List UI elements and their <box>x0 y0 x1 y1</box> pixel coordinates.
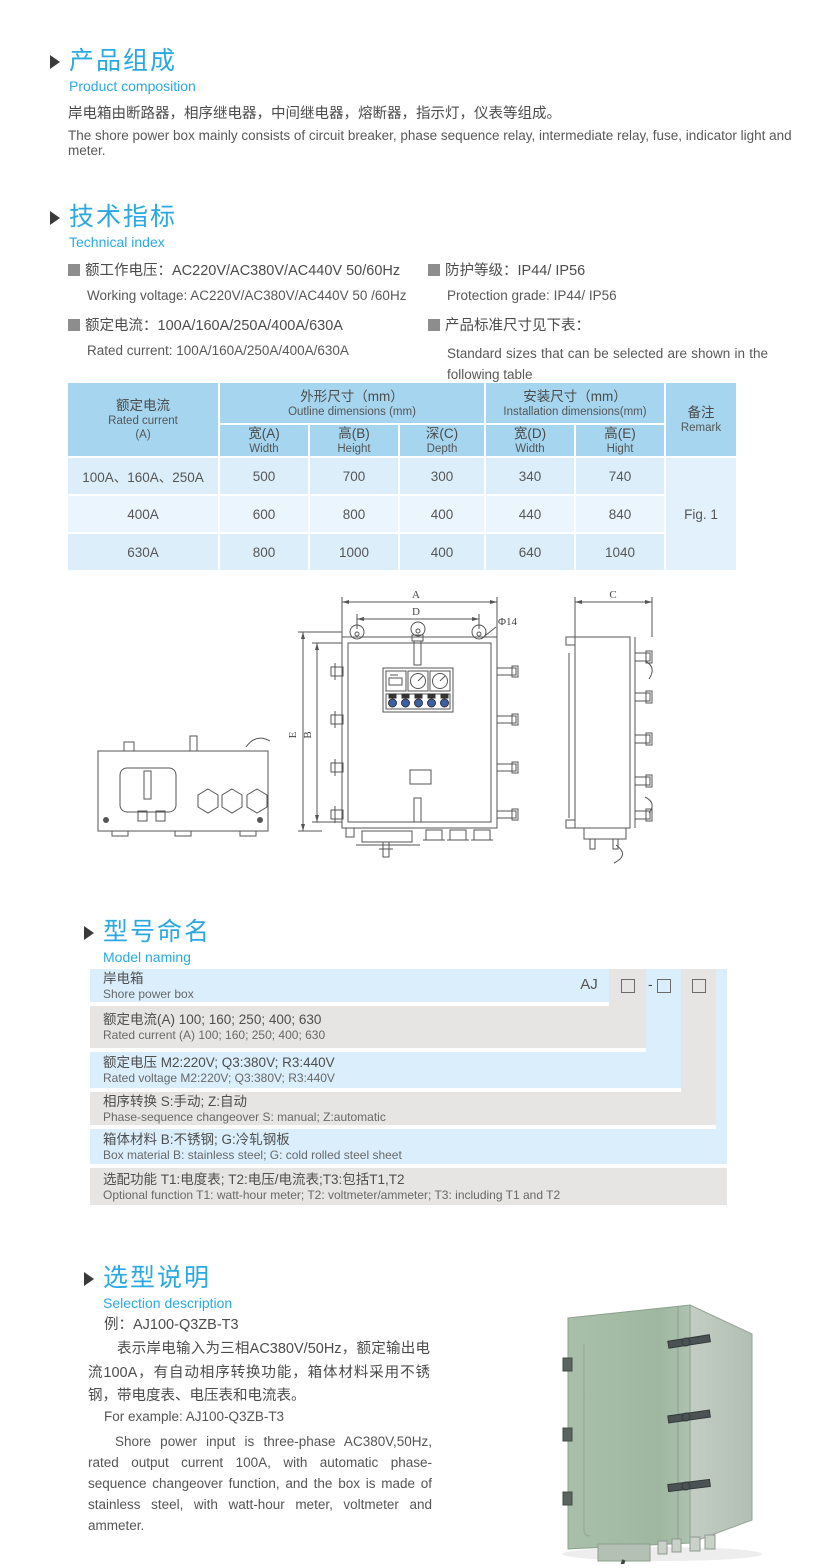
col-header-width-d: 宽(D)Width <box>486 425 574 456</box>
spec-item-en: Working voltage: AC220V/AC380V/AC440V 50… <box>87 288 406 303</box>
cell-height: 700 <box>310 458 398 494</box>
cell-current: 100A、160A、250A <box>68 458 218 494</box>
col-group-outline-dimensions: 外形尺寸（mm） Outline dimensions (mm) <box>220 383 484 423</box>
model-naming-row: 额定电压 M2:220V; Q3:380V; R3:440V Rated vol… <box>90 1052 646 1088</box>
heading-en: Technical index <box>69 233 177 251</box>
col-group-installation-dimensions: 安装尺寸（mm） Installation dimensions(mm) <box>486 383 664 423</box>
code-placeholder-box <box>692 979 706 993</box>
model-code-line: AJ - <box>90 969 727 1002</box>
cell-inst-width: 640 <box>486 534 574 570</box>
heading-en: Product composition <box>69 77 196 95</box>
product-composition-text-en: The shore power box mainly consists of c… <box>68 128 830 158</box>
drawing-side-view <box>566 597 652 863</box>
technical-index-left-column: 额工作电压：AC220V/AC380V/AC440V 50/60Hz Worki… <box>68 259 406 369</box>
technical-drawing: A D Φ14 E B C <box>60 583 770 883</box>
dim-label-d: D <box>412 606 420 618</box>
cell-height: 800 <box>310 496 398 532</box>
heading-en: Selection description <box>103 1294 232 1312</box>
dim-label-a: A <box>412 589 420 601</box>
col-header-remark: 备注 Remark <box>666 383 736 456</box>
section-arrow-icon <box>84 1272 94 1286</box>
col-header-depth-c: 深(C)Depth <box>400 425 484 456</box>
cell-inst-width: 340 <box>486 458 574 494</box>
model-naming-row: 箱体材料 B:不锈钢; G:冷轧钢板 Box material B: stain… <box>90 1129 716 1164</box>
cell-current: 630A <box>68 534 218 570</box>
cell-inst-height: 1040 <box>576 534 664 570</box>
section-selection-heading: 选型说明 Selection description <box>84 1264 232 1312</box>
bullet-square-icon <box>428 264 440 276</box>
technical-index-right-column: 防护等级：IP44/ IP56 Protection grade: IP44/ … <box>428 259 773 396</box>
model-code-prefix: AJ <box>574 976 604 993</box>
section-arrow-icon <box>50 211 60 225</box>
heading-zh: 产品组成 <box>69 47 196 75</box>
spec-item: 额工作电压：AC220V/AC380V/AC440V 50/60Hz <box>68 259 406 280</box>
product-composition-text-zh: 岸电箱由断路器，相序继电器，中间继电器，熔断器，指示灯，仪表等组成。 <box>68 102 561 123</box>
bullet-square-icon <box>68 319 80 331</box>
dim-label-e: E <box>287 731 299 738</box>
code-placeholder-box <box>621 979 635 993</box>
model-naming-diagram: 岸电箱 Shore power box 额定电流(A) 100; 160; 25… <box>90 969 727 1205</box>
table-row: 400A 600 800 400 440 840 <box>68 496 736 532</box>
cell-inst-width: 440 <box>486 496 574 532</box>
selection-body-zh: 表示岸电输入为三相AC380V/50Hz，额定输出电流100A，有自动相序转换功… <box>88 1338 430 1409</box>
cell-height: 1000 <box>310 534 398 570</box>
spec-item-en: Protection grade: IP44/ IP56 <box>447 288 773 303</box>
cell-inst-height: 840 <box>576 496 664 532</box>
model-naming-row: 额定电流(A) 100; 160; 250; 400; 630 Rated cu… <box>90 1006 609 1048</box>
spec-item: 额定电流：100A/160A/250A/400A/630A <box>68 314 406 335</box>
cell-width: 800 <box>220 534 308 570</box>
model-naming-row: 相序转换 S:手动; Z:自动 Phase-sequence changeove… <box>90 1092 681 1125</box>
bullet-square-icon <box>428 319 440 331</box>
section-technical-index-heading: 技术指标 Technical index <box>50 203 177 251</box>
cell-current: 400A <box>68 496 218 532</box>
dim-label-c: C <box>609 589 616 601</box>
col-header-width-a: 宽(A)Width <box>220 425 308 456</box>
section-arrow-icon <box>84 926 94 940</box>
cell-depth: 400 <box>400 534 484 570</box>
code-placeholder-box <box>657 979 671 993</box>
spec-item: 防护等级：IP44/ IP56 <box>428 259 773 280</box>
selection-body-en: Shore power input is three-phase AC380V,… <box>88 1431 432 1536</box>
code-dash: - <box>648 976 653 992</box>
section-product-composition-heading: 产品组成 Product composition <box>50 47 196 95</box>
drawing-front-view <box>298 597 518 857</box>
drawing-bottom-view <box>98 736 270 836</box>
heading-en: Model naming <box>103 948 211 966</box>
cell-width: 600 <box>220 496 308 532</box>
selection-example-zh: 例：AJ100-Q3ZB-T3 <box>104 1313 239 1334</box>
hole-label: Φ14 <box>498 616 518 628</box>
dimension-table: 额定电流 Rated current (A) 外形尺寸（mm） Outline … <box>66 381 738 572</box>
dim-label-b: B <box>302 731 314 738</box>
spec-item-en: Standard sizes that can be selected are … <box>447 343 768 385</box>
section-arrow-icon <box>50 55 60 69</box>
model-naming-row: 选配功能 T1:电度表; T2:电压/电流表;T3:包括T1,T2 Option… <box>90 1168 727 1205</box>
col-header-rated-current: 额定电流 Rated current (A) <box>68 383 218 456</box>
heading-zh: 型号命名 <box>103 918 211 946</box>
col-header-height-b: 高(B)Height <box>310 425 398 456</box>
product-photo <box>540 1292 790 1564</box>
spec-item-en: Rated current: 100A/160A/250A/400A/630A <box>87 343 406 358</box>
cell-depth: 400 <box>400 496 484 532</box>
cell-depth: 300 <box>400 458 484 494</box>
bullet-square-icon <box>68 264 80 276</box>
selection-example-en: For example: AJ100-Q3ZB-T3 <box>104 1409 284 1424</box>
table-row: 100A、160A、250A 500 700 300 340 740 Fig. … <box>68 458 736 494</box>
cell-remark: Fig. 1 <box>666 458 736 570</box>
datasheet-page: 产品组成 Product composition 岸电箱由断路器，相序继电器，中… <box>0 0 830 1568</box>
cell-inst-height: 740 <box>576 458 664 494</box>
table-row: 630A 800 1000 400 640 1040 <box>68 534 736 570</box>
section-model-naming-heading: 型号命名 Model naming <box>84 918 211 966</box>
heading-zh: 选型说明 <box>103 1264 232 1292</box>
spec-item: 产品标准尺寸见下表： <box>428 314 773 335</box>
col-header-hight-e: 高(E)Hight <box>576 425 664 456</box>
heading-zh: 技术指标 <box>69 203 177 231</box>
cell-width: 500 <box>220 458 308 494</box>
